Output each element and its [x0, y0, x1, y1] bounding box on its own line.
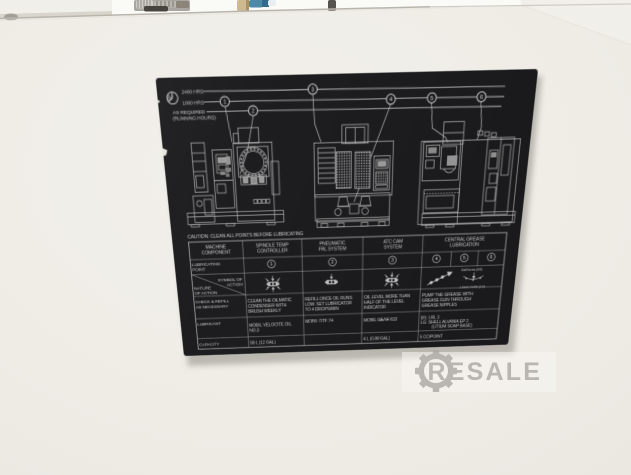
- svg-text:FRL SYSTEM: FRL SYSTEM: [318, 247, 346, 253]
- svg-text:LUBRICANT: LUBRICANT: [197, 322, 221, 327]
- svg-text:COMPONENT: COMPONENT: [201, 250, 231, 256]
- svg-text:(RUNNING HOURS): (RUNNING HOURS): [173, 115, 217, 122]
- svg-text:5 CC/POINT: 5 CC/POINT: [420, 334, 444, 339]
- svg-text:1: 1: [270, 262, 273, 267]
- svg-text:58 L (12 GAL): 58 L (12 GAL): [250, 340, 276, 345]
- svg-text:2400 HRS: 2400 HRS: [181, 89, 204, 96]
- svg-text:MOBIL DTE 24: MOBIL DTE 24: [305, 319, 333, 324]
- svg-text:POINT: POINT: [192, 268, 206, 273]
- svg-text:LUBRICATION: LUBRICATION: [450, 242, 480, 248]
- svg-text:SYSTEM: SYSTEM: [384, 245, 403, 251]
- svg-text:Linear Guide (LG): Linear Guide (LG): [460, 284, 486, 289]
- svg-text:CONTROLLER: CONTROLLER: [257, 248, 288, 254]
- svg-text:BallScrew (BS): BallScrew (BS): [461, 267, 483, 272]
- svg-text:5: 5: [463, 256, 466, 261]
- svg-text:NO.3: NO.3: [249, 329, 259, 334]
- svg-text:LUBRICATING: LUBRICATING: [192, 262, 221, 268]
- svg-text:6: 6: [490, 255, 493, 260]
- svg-text:4 L (0.88 GAL): 4 L (0.88 GAL): [363, 336, 390, 341]
- svg-text:2: 2: [331, 260, 334, 265]
- svg-text:1000 HRS: 1000 HRS: [182, 100, 205, 106]
- svg-text:3: 3: [391, 259, 394, 264]
- svg-text:INDICATOR: INDICATOR: [364, 305, 386, 310]
- svg-text:3: 3: [311, 86, 315, 93]
- svg-text:ACTION: ACTION: [227, 282, 243, 287]
- svg-text:OF ACTION: OF ACTION: [194, 291, 217, 296]
- svg-text:CAPACITY: CAPACITY: [199, 342, 220, 347]
